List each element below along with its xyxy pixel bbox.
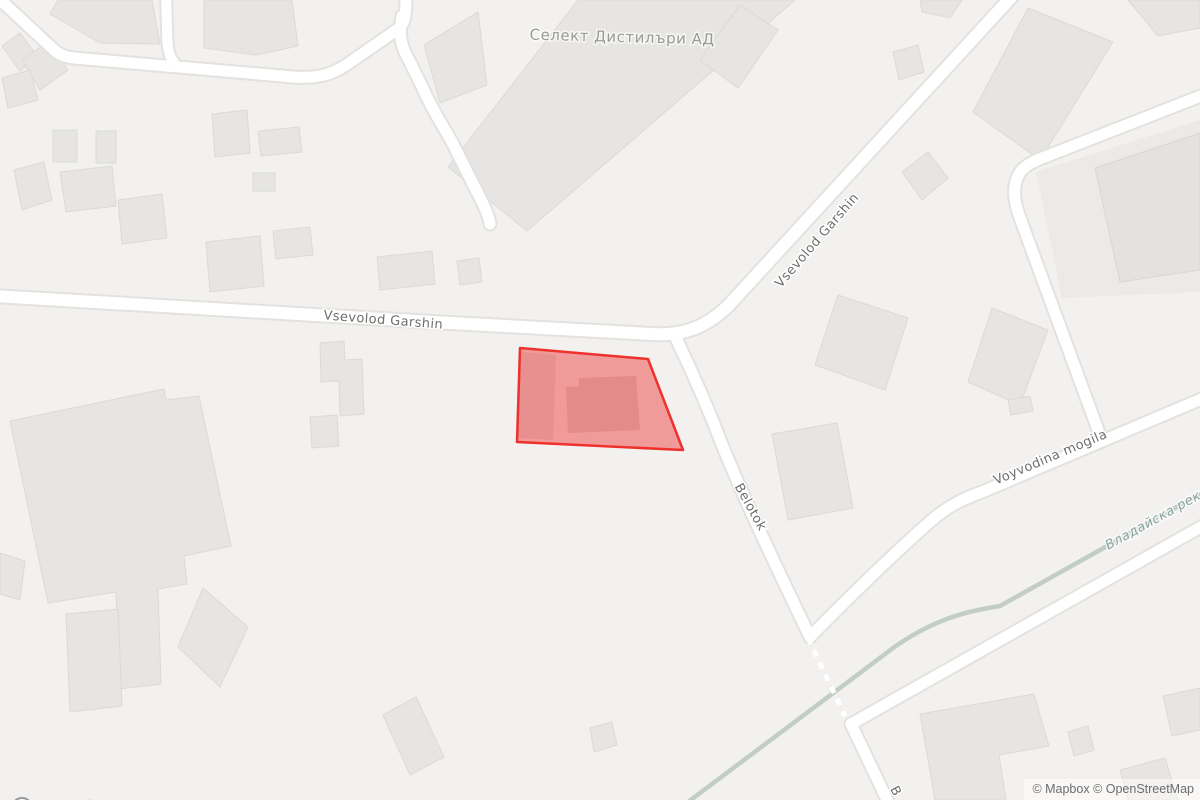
mapbox-logo-svg: mapbox: [8, 794, 118, 800]
building: [118, 194, 167, 244]
building: [273, 227, 313, 259]
building: [212, 110, 250, 157]
building: [96, 131, 116, 163]
parcel-inner-strip: [518, 352, 556, 440]
map-canvas[interactable]: Селект Дистилъри АД Vsevolod Garshin Vse…: [0, 0, 1200, 800]
building: [1008, 396, 1033, 415]
building: [60, 166, 116, 212]
building: [258, 127, 302, 156]
building: [310, 415, 339, 448]
attribution[interactable]: © Mapbox © OpenStreetMap: [1024, 779, 1200, 800]
building: [206, 236, 264, 292]
building: [53, 130, 77, 162]
building: [0, 553, 25, 600]
building: [66, 609, 122, 712]
building: [377, 251, 435, 290]
building: [204, 0, 298, 55]
map-svg: Селект Дистилъри АД Vsevolod Garshin Vse…: [0, 0, 1200, 800]
building: [253, 173, 275, 191]
building: [457, 258, 482, 285]
